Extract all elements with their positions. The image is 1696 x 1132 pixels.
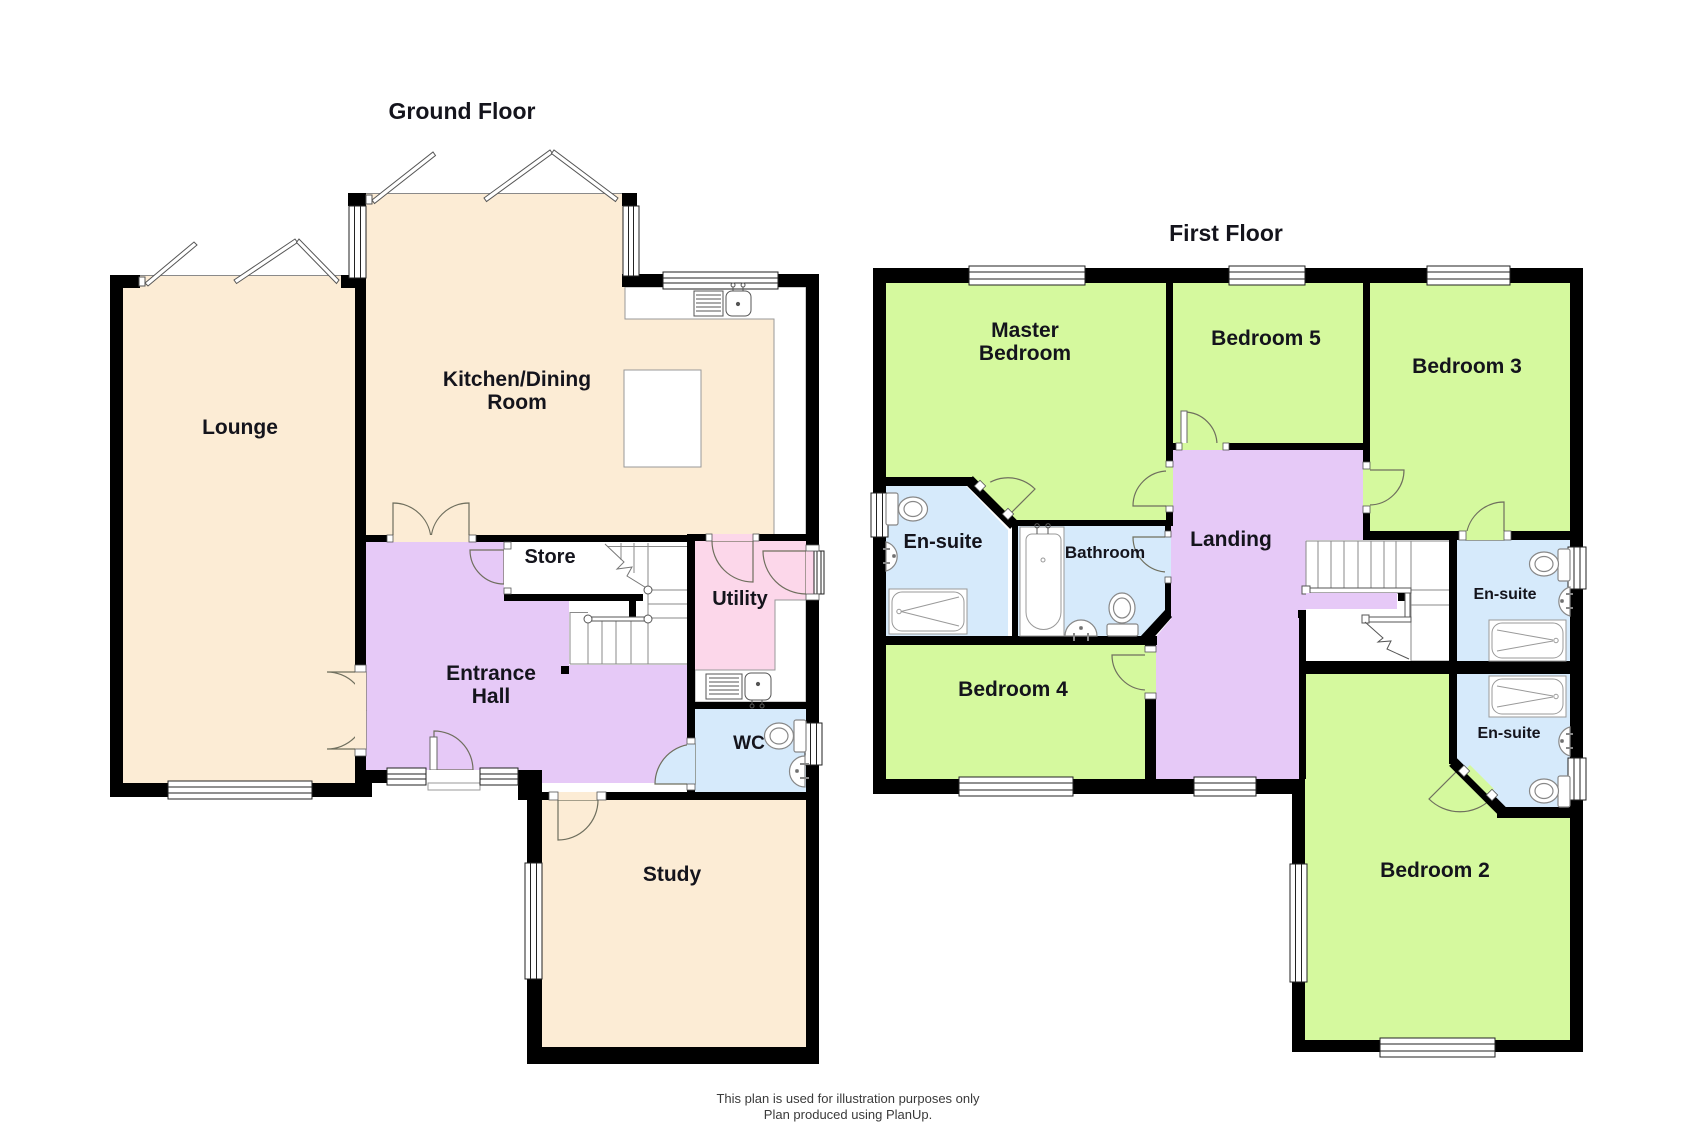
svg-text:Room: Room xyxy=(487,391,547,414)
svg-text:Master: Master xyxy=(991,319,1059,342)
svg-text:En-suite: En-suite xyxy=(904,531,983,553)
svg-text:WC: WC xyxy=(733,733,765,754)
svg-text:Bedroom 5: Bedroom 5 xyxy=(1211,327,1321,350)
svg-text:Plan produced using PlanUp.: Plan produced using PlanUp. xyxy=(764,1107,932,1122)
svg-text:Lounge: Lounge xyxy=(202,416,278,439)
svg-text:En-suite: En-suite xyxy=(1477,725,1540,742)
svg-text:Bedroom: Bedroom xyxy=(979,342,1071,365)
svg-text:En-suite: En-suite xyxy=(1473,586,1536,603)
svg-text:Bedroom 3: Bedroom 3 xyxy=(1412,355,1522,378)
svg-text:Hall: Hall xyxy=(472,685,511,708)
svg-text:Kitchen/Dining: Kitchen/Dining xyxy=(443,368,591,391)
svg-text:Entrance: Entrance xyxy=(446,662,536,685)
svg-text:This plan is used for illustra: This plan is used for illustration purpo… xyxy=(716,1091,980,1106)
svg-text:Bathroom: Bathroom xyxy=(1065,543,1145,562)
svg-text:Bedroom 2: Bedroom 2 xyxy=(1380,859,1490,882)
svg-text:Landing: Landing xyxy=(1190,528,1272,551)
svg-text:Bedroom 4: Bedroom 4 xyxy=(958,678,1068,701)
svg-text:Store: Store xyxy=(524,546,575,568)
svg-text:Ground Floor: Ground Floor xyxy=(389,98,536,124)
svg-text:Study: Study xyxy=(643,863,702,886)
svg-text:First Floor: First Floor xyxy=(1169,220,1283,246)
svg-text:Utility: Utility xyxy=(712,588,768,610)
